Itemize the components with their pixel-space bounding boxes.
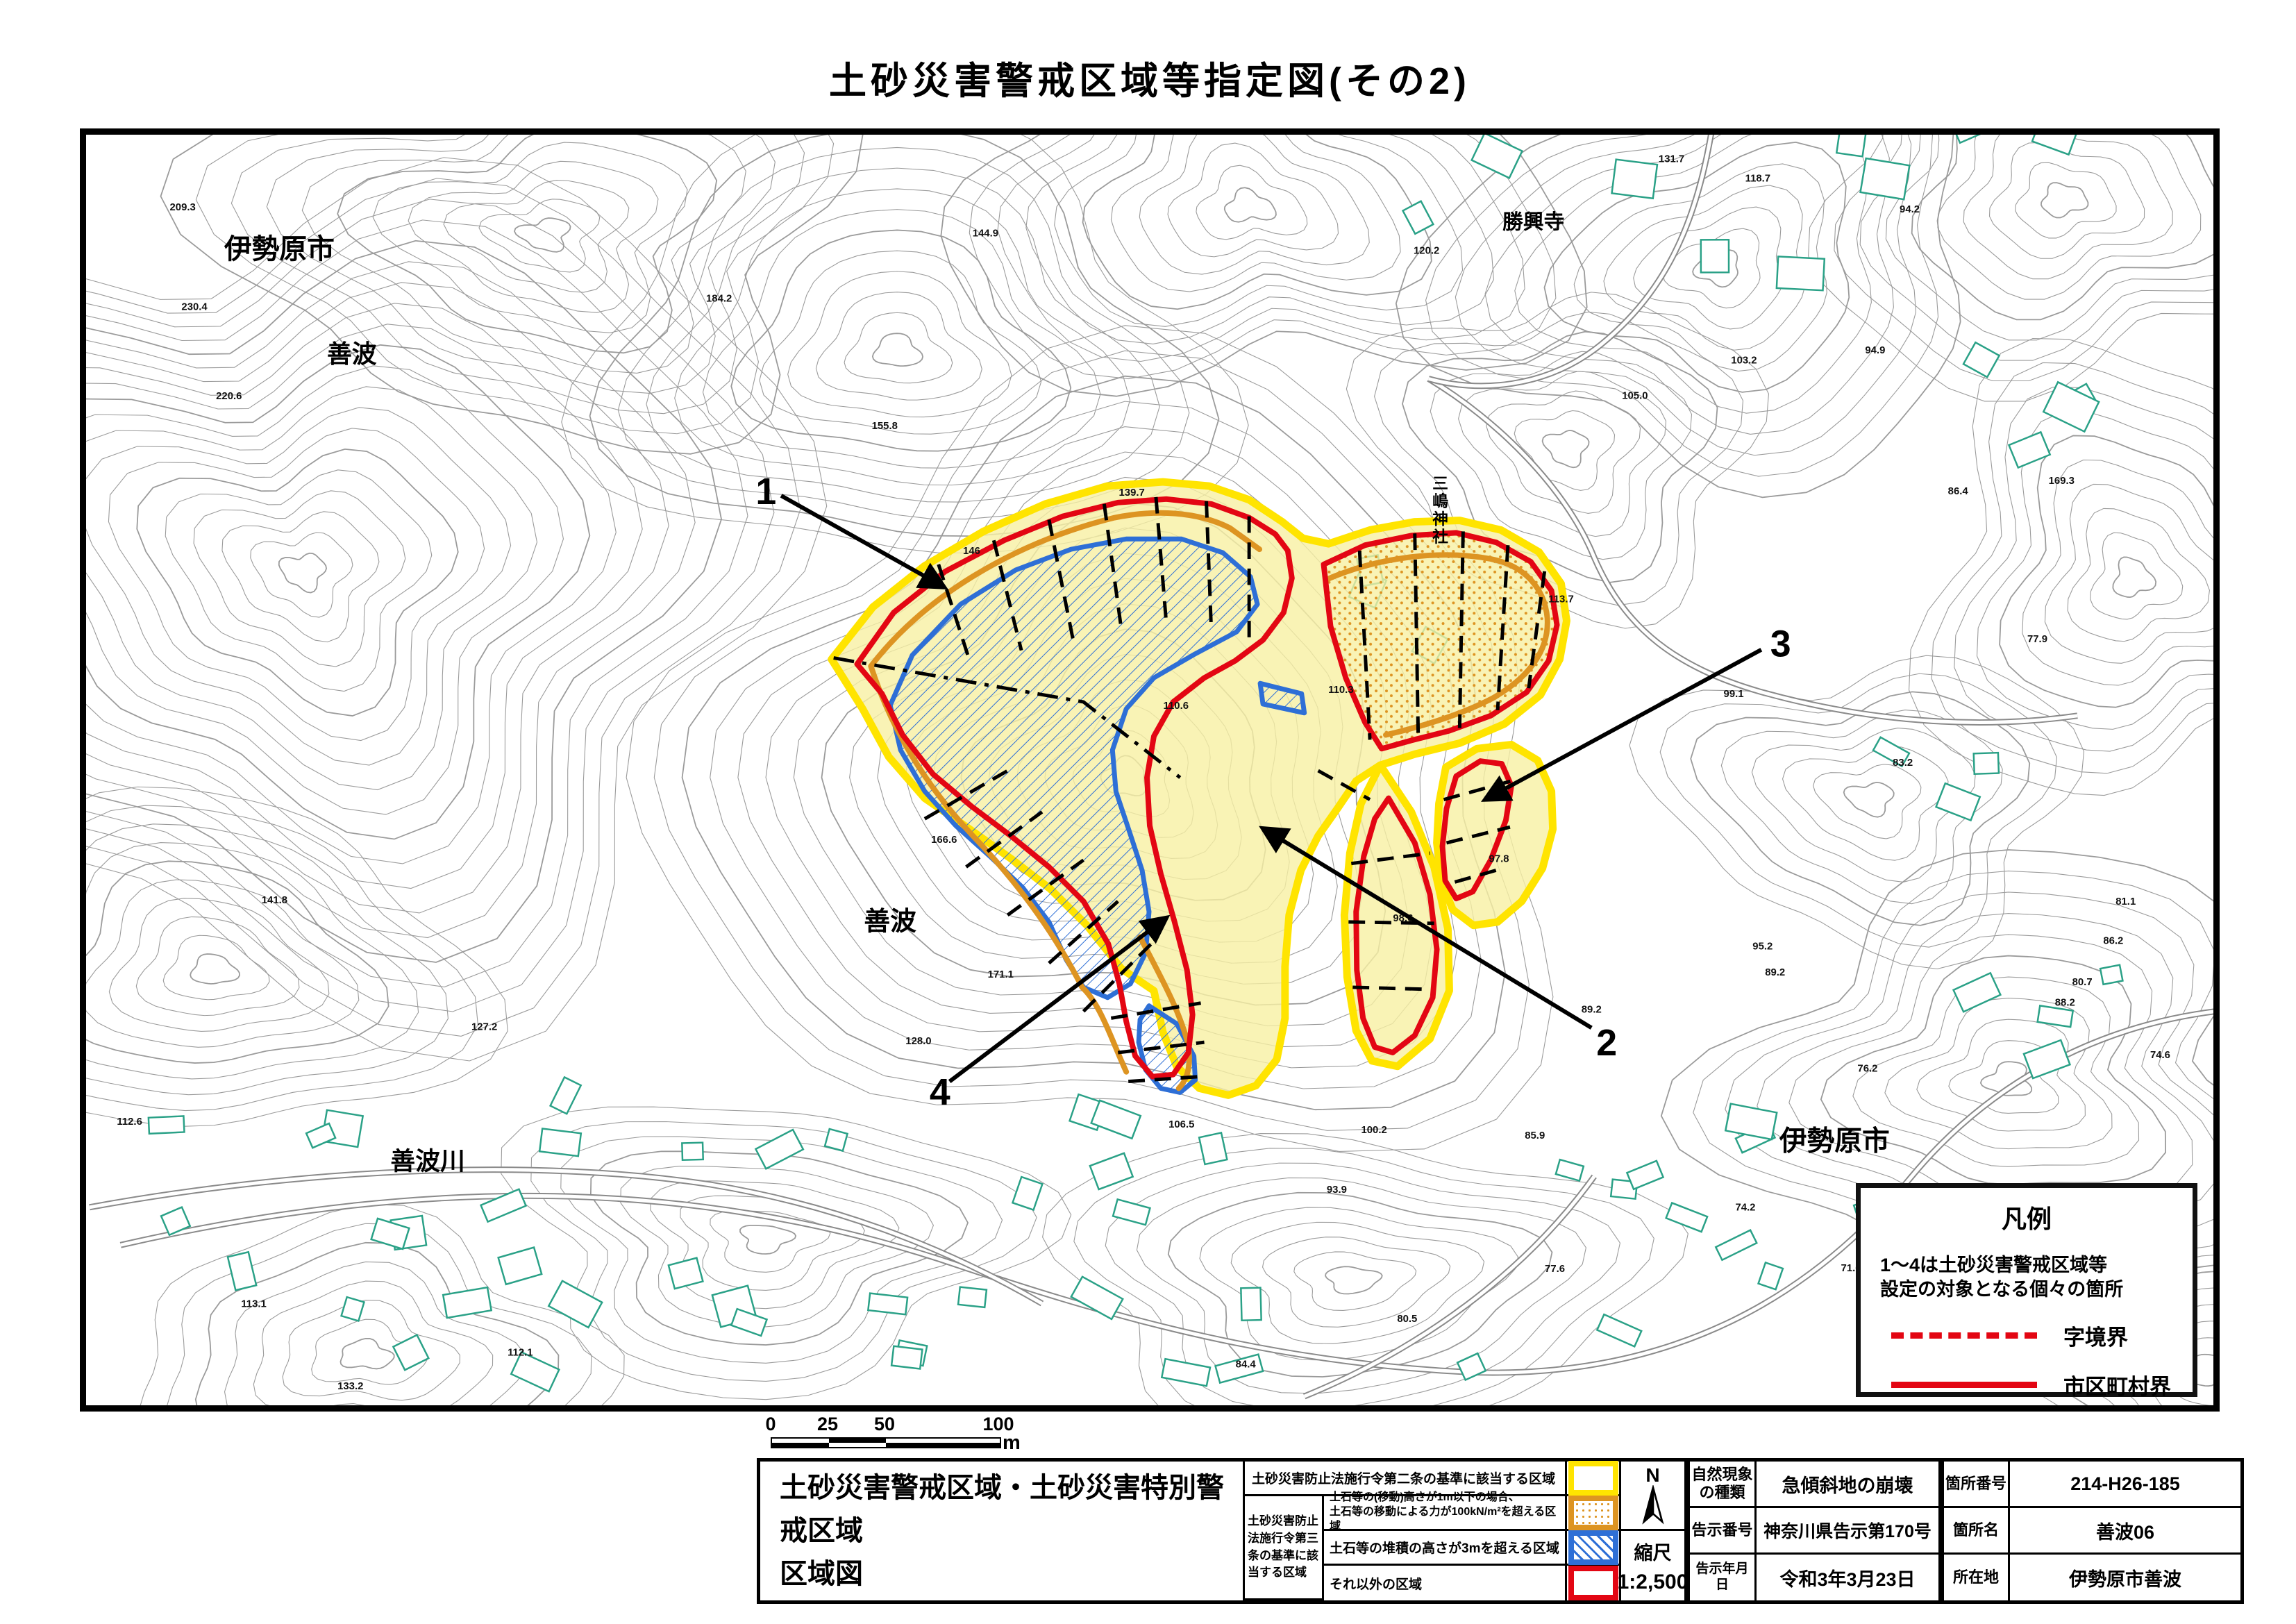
contour-line bbox=[590, 135, 1219, 536]
spot-elevation: 89.2 bbox=[1582, 1005, 1602, 1016]
contour-line bbox=[444, 181, 629, 293]
spot-elevation: 220.6 bbox=[216, 391, 242, 402]
contour-line bbox=[2090, 533, 2183, 619]
north-label: N bbox=[1645, 1466, 1659, 1485]
building-outline bbox=[2009, 432, 2050, 467]
swatch-orange-cell bbox=[1567, 1496, 1621, 1531]
contour-line bbox=[1083, 135, 1432, 309]
spot-elevation: 144.9 bbox=[973, 228, 998, 240]
building-outline bbox=[958, 1287, 987, 1307]
building-outline bbox=[1597, 1314, 1641, 1346]
building-outline bbox=[731, 1309, 766, 1336]
building-outline bbox=[1666, 1203, 1708, 1232]
notice-number-value-cell: 神奈川県告示第170号 bbox=[1757, 1508, 1941, 1555]
scale-bar-graphic bbox=[771, 1437, 1001, 1448]
building-outline bbox=[1091, 1100, 1141, 1139]
site-marker-label: 2 bbox=[1596, 1023, 1617, 1064]
notice-date-label-cell: 告示年月日 bbox=[1686, 1555, 1757, 1600]
contour-line bbox=[1294, 1252, 1416, 1310]
zone-group-label: 土砂災害防止法施行令第三条の基準に該当する区域 bbox=[1245, 1496, 1324, 1600]
contour-line bbox=[1917, 1019, 2086, 1131]
solid-red-line-sample bbox=[1891, 1382, 2037, 1388]
contour-line bbox=[1263, 1237, 1450, 1328]
contour-line bbox=[86, 241, 721, 962]
scale-label: 縮尺 bbox=[1634, 1538, 1672, 1565]
scale-unit: m bbox=[1003, 1432, 1021, 1455]
building-outline bbox=[1963, 342, 2000, 377]
contour-line bbox=[998, 135, 1525, 361]
spot-elevation: 155.8 bbox=[872, 421, 898, 432]
legend-note-line1: 1〜4は土砂災害警戒区域等 bbox=[1880, 1253, 2193, 1278]
building-outline bbox=[1556, 1160, 1584, 1180]
spot-elevation: 100.2 bbox=[1361, 1125, 1386, 1136]
scale-value: 1:2,500 bbox=[1618, 1571, 1689, 1594]
contour-line bbox=[86, 345, 589, 839]
contour-line bbox=[86, 199, 774, 1012]
legend-note: 1〜4は土砂災害警戒区域等 設定の対象となる個々の箇所 bbox=[1880, 1253, 2193, 1302]
notice-number-label-cell: 告示番号 bbox=[1686, 1508, 1757, 1555]
scale-tick-50: 50 bbox=[874, 1414, 895, 1435]
spot-elevation: 110.6 bbox=[1164, 701, 1189, 712]
building-outline bbox=[498, 1248, 542, 1284]
contour-line bbox=[1783, 746, 1948, 860]
contour-line bbox=[1543, 430, 1589, 467]
contour-line bbox=[531, 1122, 1037, 1382]
zone-row3-desc: 土石等の堆積の高さが3mを超える区域 bbox=[1324, 1531, 1567, 1566]
info-table: 土砂災害警戒区域・土砂災害特別警戒区域 区域図 土砂災害防止法施行令第二条の基準… bbox=[757, 1458, 2244, 1604]
spot-elevation: 230.4 bbox=[181, 302, 208, 313]
place-label: 善波川 bbox=[390, 1147, 464, 1175]
site-marker-label: 3 bbox=[1770, 624, 1791, 665]
nat-phenomenon-label-cell: 自然現象の種類 bbox=[1686, 1462, 1757, 1508]
place-label: 三嶋神社 bbox=[1432, 474, 1448, 546]
building-outline bbox=[2038, 1005, 2073, 1027]
contour-line bbox=[703, 210, 1100, 469]
contour-line bbox=[109, 898, 329, 1032]
spot-elevation: 127.2 bbox=[471, 1021, 497, 1032]
building-outline bbox=[149, 1116, 185, 1133]
blue-zone-swatch bbox=[1568, 1530, 1618, 1565]
contour-line bbox=[86, 303, 642, 889]
contour-line bbox=[1026, 135, 1494, 344]
contour-line bbox=[222, 512, 379, 642]
contour-line bbox=[2068, 508, 2209, 641]
legend-note-line2: 設定の対象となる個々の箇所 bbox=[1880, 1278, 2193, 1302]
building-outline bbox=[1403, 201, 1434, 234]
building-outline bbox=[1472, 135, 1523, 178]
scale-bar: 0 25 50 100 m bbox=[762, 1414, 1054, 1457]
page: 土砂災害警戒区域等指定図(その2) bbox=[0, 0, 2296, 1624]
contour-line bbox=[1196, 165, 1307, 240]
contour-line bbox=[2041, 183, 2088, 217]
contour-line bbox=[2045, 484, 2213, 663]
map-sheet-title-line2: 区域図 bbox=[780, 1552, 1243, 1596]
contour-line bbox=[873, 333, 923, 366]
scale-tick-0: 0 bbox=[765, 1414, 776, 1435]
spot-elevation: 133.2 bbox=[337, 1381, 363, 1392]
contour-line bbox=[225, 1262, 526, 1405]
building-outline bbox=[1861, 158, 1910, 199]
building-outline bbox=[1113, 1199, 1150, 1225]
contour-line bbox=[740, 1225, 796, 1254]
north-arrow-icon bbox=[1638, 1485, 1668, 1525]
spot-elevation: 80.5 bbox=[1397, 1314, 1417, 1325]
spot-elevation: 120.2 bbox=[1414, 245, 1439, 256]
building-outline bbox=[443, 1287, 491, 1318]
swatch-yellow-cell bbox=[1567, 1462, 1621, 1496]
legend-item-label: 市区町村界 bbox=[2063, 1369, 2171, 1400]
contour-line bbox=[1938, 135, 2201, 299]
contour-line bbox=[337, 135, 717, 353]
building-outline bbox=[2024, 1040, 2070, 1078]
contour-line bbox=[86, 366, 563, 814]
site-name-value-cell: 善波06 bbox=[2010, 1508, 2240, 1555]
spot-elevation: 86.4 bbox=[1948, 486, 1969, 497]
scale-tick-25: 25 bbox=[817, 1414, 838, 1435]
road-fill bbox=[1429, 135, 1719, 386]
contour-line bbox=[196, 135, 833, 434]
building-outline bbox=[1090, 1153, 1133, 1189]
spot-elevation: 84.4 bbox=[1236, 1359, 1257, 1371]
building-outline bbox=[306, 1123, 335, 1148]
place-label: 伊勢原市 bbox=[224, 234, 335, 265]
contour-line bbox=[136, 917, 299, 1016]
spot-elevation: 141.8 bbox=[262, 895, 287, 906]
location-value-cell: 伊勢原市善波 bbox=[2010, 1555, 2240, 1600]
building-outline bbox=[1836, 135, 1867, 156]
spot-elevation: 103.2 bbox=[1731, 355, 1757, 367]
contour-line bbox=[514, 218, 571, 252]
place-label: 勝興寺 bbox=[1502, 211, 1564, 234]
site-marker-label: 1 bbox=[755, 471, 776, 512]
contour-line bbox=[86, 861, 389, 1063]
building-outline bbox=[2100, 965, 2122, 985]
spot-elevation: 74.6 bbox=[2150, 1050, 2170, 1061]
building-outline bbox=[1716, 1230, 1757, 1260]
spot-elevation: 131.7 bbox=[1659, 154, 1684, 165]
building-outline bbox=[825, 1129, 848, 1151]
spot-elevation: 112.6 bbox=[117, 1116, 142, 1128]
building-outline bbox=[1974, 753, 1999, 774]
contour-line bbox=[163, 935, 269, 999]
contour-line bbox=[1225, 187, 1276, 222]
contour-line bbox=[137, 449, 458, 716]
building-outline bbox=[1012, 1177, 1042, 1210]
contour-line bbox=[86, 387, 537, 790]
contour-line bbox=[279, 553, 326, 593]
contour-line bbox=[1325, 1266, 1382, 1294]
spot-elevation: 118.7 bbox=[1745, 173, 1770, 184]
spot-elevation: 184.2 bbox=[706, 294, 732, 305]
contour-line bbox=[1485, 135, 1893, 434]
contour-line bbox=[1885, 998, 2112, 1149]
building-outline bbox=[2032, 135, 2077, 155]
contour-line bbox=[1486, 391, 1641, 513]
place-label: 伊勢原市 bbox=[1779, 1126, 1890, 1157]
spot-elevation: 110.3 bbox=[1328, 685, 1353, 696]
hazard-zones bbox=[832, 482, 1567, 1095]
spot-elevation: 113.1 bbox=[241, 1298, 266, 1309]
zone-row2-desc: 土石等の(移動)高さが1m以下の場合、 土石等の移動による力が100kN/m²を… bbox=[1324, 1496, 1567, 1531]
legend-item-aza-boundary: 字境界 bbox=[1891, 1320, 2193, 1351]
building-outline bbox=[1457, 1353, 1486, 1380]
spot-elevation: 88.2 bbox=[2055, 998, 2075, 1009]
contour-line bbox=[1139, 135, 1369, 274]
spot-elevation: 86.2 bbox=[2103, 936, 2123, 947]
north-arrow-cell: N bbox=[1621, 1462, 1686, 1531]
contour-line bbox=[788, 271, 1012, 417]
contour-line bbox=[1954, 387, 2213, 752]
spot-elevation: 93.9 bbox=[1327, 1184, 1347, 1196]
contour-line bbox=[1963, 135, 2172, 279]
yellow-zone-swatch bbox=[1568, 1461, 1618, 1496]
building-outline bbox=[1954, 973, 2001, 1012]
contour-line bbox=[340, 1339, 394, 1369]
contour-line bbox=[675, 189, 1130, 485]
orange-zone-swatch bbox=[1568, 1496, 1618, 1530]
spot-elevation: 99.1 bbox=[1724, 689, 1744, 700]
dashed-red-line-sample bbox=[1891, 1332, 2037, 1339]
contour-line bbox=[816, 292, 982, 400]
contour-line bbox=[1844, 782, 1894, 817]
contour-line bbox=[1111, 135, 1400, 292]
spot-elevation: 209.3 bbox=[170, 202, 196, 213]
legend-item-municipal-boundary: 市区町村界 bbox=[1891, 1369, 2193, 1400]
contour-line bbox=[194, 491, 405, 667]
building-outline bbox=[1725, 1104, 1777, 1139]
contour-line bbox=[1168, 143, 1338, 257]
contour-line bbox=[408, 161, 658, 312]
building-outline bbox=[1612, 160, 1657, 199]
building-outline bbox=[1071, 1277, 1123, 1319]
contour-line bbox=[160, 135, 862, 454]
spot-elevation: 81.1 bbox=[2115, 896, 2136, 907]
contour-line bbox=[165, 470, 432, 692]
contour-line bbox=[283, 1300, 460, 1400]
spot-elevation: 105.0 bbox=[1622, 390, 1648, 401]
contour-line bbox=[1455, 135, 1916, 455]
contour-line bbox=[1691, 692, 2029, 925]
building-outline bbox=[755, 1130, 803, 1169]
spot-elevation: 77.6 bbox=[1545, 1264, 1565, 1275]
spot-elevation: 112.1 bbox=[508, 1348, 533, 1359]
nat-phenomenon-value-cell: 急傾斜地の崩壊 bbox=[1757, 1462, 1941, 1508]
contour-line bbox=[646, 168, 1159, 502]
contour-line bbox=[731, 230, 1071, 451]
legend-item-label: 字境界 bbox=[2063, 1320, 2128, 1351]
spot-elevation: 139.7 bbox=[1118, 487, 1144, 499]
contour-line bbox=[86, 787, 508, 1126]
building-outline bbox=[1627, 1161, 1663, 1189]
contour-line bbox=[1757, 914, 2213, 1220]
building-outline bbox=[539, 1129, 581, 1157]
place-label: 善波 bbox=[327, 340, 377, 368]
contour-line bbox=[1989, 142, 2144, 258]
contour-line bbox=[1886, 135, 2213, 340]
spot-elevation: 83.2 bbox=[1893, 757, 1913, 769]
building-outline bbox=[1759, 1262, 1783, 1289]
spot-elevation: 77.9 bbox=[2027, 634, 2047, 645]
site-marker-label: 4 bbox=[930, 1072, 950, 1113]
spot-elevation: 113.7 bbox=[1548, 594, 1573, 605]
legend-box: 凡例 1〜4は土砂災害警戒区域等 設定の対象となる個々の箇所 字境界 市区町村界 bbox=[1856, 1183, 2197, 1397]
contour-line bbox=[1514, 410, 1614, 490]
location-label-cell: 所在地 bbox=[1941, 1555, 2010, 1600]
contour-line bbox=[190, 954, 240, 984]
contour-line bbox=[86, 805, 478, 1110]
spot-elevation: 74.2 bbox=[1735, 1203, 1755, 1214]
contour-line bbox=[1813, 764, 1921, 839]
building-outline bbox=[2043, 382, 2099, 431]
contour-line bbox=[2000, 435, 2213, 707]
spot-elevation: 169.3 bbox=[2049, 476, 2075, 487]
notice-date-value-cell: 令和3年3月23日 bbox=[1757, 1555, 1941, 1600]
building-outline bbox=[393, 1335, 428, 1370]
scale-cell: 縮尺 1:2,500 bbox=[1621, 1531, 1686, 1600]
contour-line bbox=[251, 533, 353, 617]
spot-elevation: 95.2 bbox=[1752, 941, 1773, 952]
building-outline bbox=[891, 1346, 922, 1369]
page-title: 土砂災害警戒区域等指定図(その2) bbox=[80, 50, 2220, 105]
place-label: 善波 bbox=[864, 907, 916, 936]
building-outline bbox=[1199, 1132, 1227, 1164]
spot-elevation: 97.8 bbox=[1489, 854, 1509, 865]
contour-line bbox=[1200, 1207, 1518, 1360]
zone-row4-desc: それ以外の区域 bbox=[1324, 1566, 1567, 1600]
building-outline bbox=[342, 1297, 364, 1321]
building-outline bbox=[228, 1252, 256, 1290]
contour-line bbox=[1055, 135, 1463, 326]
spot-elevation: 94.2 bbox=[1900, 204, 1920, 215]
building-outline bbox=[1241, 1288, 1261, 1321]
contour-line bbox=[1860, 135, 2213, 360]
spot-elevation: 94.9 bbox=[1865, 345, 1885, 356]
building-outline bbox=[682, 1143, 703, 1160]
contour-line bbox=[2022, 460, 2213, 685]
legend-title: 凡例 bbox=[1861, 1199, 2193, 1235]
site-name-label-cell: 箇所名 bbox=[1941, 1508, 2010, 1555]
building-outline bbox=[1777, 256, 1825, 290]
building-outline bbox=[868, 1294, 907, 1315]
swatch-red-cell bbox=[1567, 1566, 1621, 1600]
contour-line bbox=[302, 135, 746, 373]
red-zone-swatch bbox=[1568, 1566, 1618, 1600]
contour-line bbox=[2113, 557, 2156, 597]
spot-elevation: 89.2 bbox=[1765, 967, 1785, 978]
contour-line bbox=[2016, 162, 2116, 238]
road-outline bbox=[1429, 135, 1719, 386]
spot-elevation: 76.2 bbox=[1857, 1064, 1877, 1075]
spot-elevation: 85.9 bbox=[1525, 1130, 1545, 1141]
spot-elevation: 80.7 bbox=[2072, 977, 2093, 988]
swatch-blue-cell bbox=[1567, 1531, 1621, 1566]
map-sheet-title-cell: 土砂災害警戒区域・土砂災害特別警戒区域 区域図 bbox=[760, 1462, 1245, 1600]
map-sheet-title-line1: 土砂災害警戒区域・土砂災害特別警戒区域 bbox=[780, 1466, 1243, 1552]
building-outline bbox=[1162, 1359, 1210, 1386]
spot-elevation: 128.0 bbox=[905, 1036, 931, 1047]
spot-elevation: 106.5 bbox=[1168, 1119, 1194, 1130]
building-outline bbox=[669, 1258, 703, 1289]
contour-line bbox=[844, 312, 953, 383]
site-number-value-cell: 214-H26-185 bbox=[2010, 1462, 2240, 1508]
spot-elevation: 166.6 bbox=[931, 835, 957, 846]
spot-elevation: 146 bbox=[963, 546, 980, 557]
spot-elevation: 171.1 bbox=[988, 969, 1014, 980]
site-number-label-cell: 箇所番号 bbox=[1941, 1462, 2010, 1508]
contour-line bbox=[969, 135, 1556, 379]
building-outline bbox=[551, 1077, 581, 1114]
building-outline bbox=[1701, 240, 1729, 272]
